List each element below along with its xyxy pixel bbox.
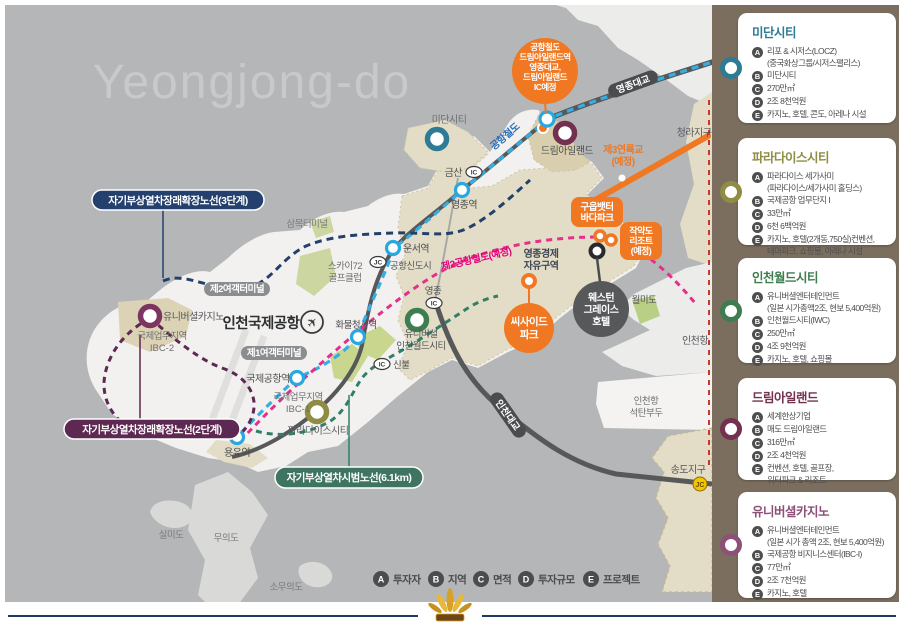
project-card: 미단시티A리포 & 시저스(LOCZ)(중국화상그룹/시저스팰리스)B미단시티C… [738,13,896,123]
airport-stn-label: 국제공항역 [246,373,290,385]
terminal2-label: 제2여객터미널 [210,283,265,295]
project-info-sidebar: 미단시티A리포 & 시저스(LOCZ)(중국화상그룹/시저스팰리스)B미단시티C… [712,5,899,602]
item-line: (일본 시가 총액 2조, 현보 5,400억원) [767,537,884,549]
cheongna-zone [680,92,712,266]
item-line: 2조 8천억원 [767,96,806,108]
item-line: (중국화상그룹/시저스팰리스) [767,58,860,70]
airport-rail-badge-pointer [545,103,546,114]
item-line: 33만㎡ [767,208,790,220]
project-card: 인천월드시티A유니버셜엔터테인먼트(일본 시가총액2조, 현보 5,400억원)… [738,258,896,363]
yeongjong-ic-name-label: 영종 [425,286,442,297]
footer-strip [0,602,904,624]
airport-station-marker [291,372,304,385]
lotus-logo [418,586,482,626]
item-letter-chip: A [752,47,763,58]
cheongna-label: 청라지구 [677,127,712,139]
item-letter-chip: A [752,292,763,303]
card-marker-dot [720,534,742,556]
item-letter-chip: A [752,526,763,537]
dream-station-marker [540,112,554,126]
item-line: 270만㎡ [767,83,795,95]
muuido-label: 무의도 [214,533,239,544]
jakyakdo-l2: (예정) [631,245,652,256]
item-letter-chip: B [752,316,763,327]
seaside-l1: 파크 [520,328,539,341]
dream-project-marker [556,124,575,143]
item-line: 2조 4천억원 [767,450,806,462]
item-line: 카지노, 호텔(2개동,750실)컨벤션, [767,234,874,246]
seaside-l0: 씨사이드 [511,315,548,328]
card-item: C33만㎡ [752,208,886,220]
bridge3-label-1: 제3연륙교 [603,143,643,156]
ibc2-label-1: 국제업무지역 [137,330,186,342]
paradise-project-marker [308,403,327,422]
sinbul-label: 신불 [393,360,410,371]
card-item: B매도 드림아일랜드 [752,424,886,436]
legend-label-a: 투자자 [393,573,421,586]
dream-label: 드림아일랜드 [541,145,594,157]
card-title: 유니버셜카지노 [752,501,886,520]
card-item: B미단시티 [752,70,886,82]
item-line: 테마파크, 쇼핑몰, 아레나 시설 [767,246,874,258]
card-item: A파라다이스 세가사미(파라다이스/세가사미 홀딩스) [752,171,886,194]
item-line: (일본 시가총액2조, 현보 5,400억원) [767,303,880,315]
card-item: E컨벤션, 호텔, 골프장,워터파크 & 리조트 [752,463,886,486]
item-line: 유니버셜엔터테인먼트 [767,525,884,537]
project-card: 드림아일랜드A세계한상기업B매도 드림아일랜드C316만㎡D2조 4천억원E컨벤… [738,378,896,480]
item-letter-chip: A [752,412,763,423]
legend-label-e: 프로젝트 [603,573,640,586]
airport-rail-badge-l0: 공항철도 [530,42,560,52]
item-line: 국제공항 비지니스센터(IBC-I) [767,549,862,561]
legend-label-d: 투자규모 [538,573,575,586]
item-letter-chip: D [752,576,763,587]
somuuido-label: 소무의도 [270,582,304,593]
legend-letter-a: A [378,575,385,585]
item-letter-chip: C [752,84,763,95]
card-marker-dot [720,57,742,79]
geumsan-label: 금산 [445,167,463,179]
sammok-label: 삼목터미널 [286,219,327,230]
legend-letter-c: C [478,575,485,585]
card-title: 미단시티 [752,22,886,41]
midan-label: 미단시티 [432,114,467,126]
card-item: C77만㎡ [752,562,886,574]
item-letter-chip: D [752,451,763,462]
unseo-label: 운서역 [403,243,429,255]
footer-rule-left [8,615,418,617]
airport-name-label: 인천국제공항 [222,314,300,332]
item-letter-chip: B [752,425,763,436]
legend: A 투자자 B 지역 C 면적 D 투자규모 E 프로젝트 [373,571,640,587]
project-card: 파라다이스시티A파라다이스 세가사미(파라다이스/세가사미 홀딩스)B국제공항 … [738,138,896,245]
item-line: 매도 드림아일랜드 [767,424,827,436]
item-line: 리포 & 시저스(LOCZ) [767,46,860,58]
card-title: 인천월드시티 [752,267,886,286]
unseo-station-marker [387,242,400,255]
island-title: Yeongjong-do [93,56,412,109]
yeongjong-stn-label: 영종역 [451,199,477,211]
item-line: 4조 9천억원 [767,341,806,353]
card-marker-dot [720,300,742,322]
sky72-label-1: 스카이72 [328,261,363,272]
item-line: 세계한상기업 [767,411,810,423]
item-line: 국제공항 업무단지 I [767,195,830,207]
legend-letter-b: B [433,575,440,585]
maglev3-badge-label: 자기부상열차장래확장노선(3단계) [108,194,248,207]
item-letter-chip: E [752,110,763,121]
ucasino-project-marker [141,307,160,326]
card-item: D4조 9천억원 [752,341,886,353]
airport-rail-badge-l1: 드림아일랜드역 [519,52,570,62]
item-letter-chip: E [752,589,763,600]
econ-label-2: 자유구역 [524,259,559,272]
midan-project-marker [428,130,447,149]
geumsan-ic-label: IC [471,170,478,177]
coal-label-1: 인천항 [634,396,659,407]
ibc1-label-1: 국제업무지역 [273,391,322,403]
wolmido-label: 월미도 [632,294,657,306]
legend-label-c: 면적 [493,573,511,586]
item-line: 316만㎡ [767,437,795,449]
yeongjong-bridge-label: 영종대교 [615,73,652,96]
card-item: D6천 6백억원 [752,221,886,233]
card-item: C250만㎡ [752,328,886,340]
airport-rail-badge-l2: 영종대교, [529,62,560,72]
somuuido-island [298,562,332,587]
card-item: B국제공항 비지니스센터(IBC-I) [752,549,886,561]
songdo-zone [652,428,712,592]
jakyakdo-l0: 작약도 [629,225,654,236]
cargo-label: 화물청사역 [335,320,376,331]
item-letter-chip: C [752,329,763,340]
item-letter-chip: E [752,464,763,475]
card-item: D2조 8천억원 [752,96,886,108]
sinbul-ic-label: IC [379,362,386,369]
item-line: 카지노, 호텔 [767,588,807,600]
cargo-station-marker [352,331,365,344]
ucasino-label: 유니버셜카지노 [163,311,224,323]
item-line: 2조 7천억원 [767,575,806,587]
item-line: 250만㎡ [767,328,795,340]
yongyu-label: 용유역 [224,447,250,459]
item-letter-chip: E [752,355,763,366]
project-card: 유니버셜카지노A유니버셜엔터테인먼트(일본 시가 총액 2조, 현보 5,400… [738,492,896,598]
yeongjong-ic-label: IC [431,301,438,308]
ibc1-label-2: IBC-1 [286,404,310,415]
maglev2-badge-label: 자기부상열차장래확장노선(2단계) [82,423,222,436]
jakyakdo-l1: 리조트 [629,235,654,246]
coal-label-2: 석탄부두 [630,408,664,419]
western-grace-marker [591,245,604,258]
item-line: 유니버셜엔터테인먼트 [767,291,880,303]
airport-rail-badge-l4: IC예정 [534,82,556,92]
yeongjong-station-marker [456,184,469,197]
silmido-island [150,500,192,528]
item-letter-chip: B [752,196,763,207]
iwc-label-1: 유니버셜 [405,329,438,340]
yeongjongdo-development-map: { "title": "Yeongjong-do", "map": { "bad… [0,0,904,624]
iwc-project-marker [408,311,427,330]
item-letter-chip: D [752,222,763,233]
sky72-label-2: 골프클럽 [329,273,362,284]
seaside-marker [523,275,535,287]
item-letter-chip: C [752,438,763,449]
item-line: 미단시티 [767,70,796,82]
card-item: B인천월드시티(IWC) [752,315,886,327]
item-letter-chip: A [752,172,763,183]
songdo-label: 송도지구 [671,464,706,476]
newtown-jc-label: JC [374,260,383,267]
card-item: A유니버셜엔터테인먼트(일본 시가총액2조, 현보 5,400억원) [752,291,886,314]
ibc2-label-2: IBC-2 [150,343,174,354]
incheon-port-label: 인천항 [682,335,708,347]
guueup-l1: 바다파크 [581,212,615,224]
item-line: 파라다이스 세가사미 [767,171,862,183]
western-l2: 호텔 [592,315,610,328]
jakyakdo-marker-1 [595,231,605,241]
item-line: 워터파크 & 리조트 [767,475,834,487]
bridge3-label-2: (예정) [611,155,634,168]
maglev-test-badge-label: 자기부상열차시범노선(6.1km) [287,471,412,484]
card-item: E카지노, 호텔 [752,588,886,600]
card-item: D2조 4천억원 [752,450,886,462]
airport-newtown-label: 공항신도시 [390,261,431,272]
card-item: C316만㎡ [752,437,886,449]
item-line: 6천 6백억원 [767,221,806,233]
airport-rail-badge-l3: 드림아일랜드 [523,72,568,82]
western-l0: 웨스턴 [588,291,614,304]
item-line: 인천월드시티(IWC) [767,315,830,327]
card-item: A유니버셜엔터테인먼트(일본 시가 총액 2조, 현보 5,400억원) [752,525,886,548]
seaside-badge [504,303,554,353]
card-item: D2조 7천억원 [752,575,886,587]
legend-letter-e: E [588,575,594,585]
paradise-label: 파라다이스시티 [288,425,349,437]
silmido-label: 실미도 [159,530,184,541]
legend-label-b: 지역 [448,573,466,586]
item-letter-chip: E [752,235,763,246]
songdo-jc-label: JC [696,482,705,489]
card-title: 파라다이스시티 [752,147,886,166]
item-line: 컨벤션, 호텔, 골프장, [767,463,834,475]
card-item: C270만㎡ [752,83,886,95]
iwc-label-2: 인천월드시티 [396,340,445,352]
card-marker-dot [720,181,742,203]
item-letter-chip: B [752,550,763,561]
incheon-bridge-pill: 인천대교 [487,390,528,441]
item-letter-chip: D [752,342,763,353]
map-canvas: Yeongjong-do [5,5,712,602]
item-line: 카지노, 호텔, 쇼핑몰 [767,354,832,366]
card-title: 드림아일랜드 [752,387,886,406]
jakyakdo-marker-2 [606,235,616,245]
legend-letter-d: D [523,575,530,585]
econ-label-1: 영종경제 [524,247,559,260]
western-l1: 그레이스 [584,303,619,316]
item-letter-chip: C [752,563,763,574]
terminal1-label: 제1여객터미널 [247,347,302,359]
item-line: 카지노, 호텔, 콘도, 아레나 시설 [767,109,866,121]
yeongjong-bridge-pill: 영종대교 [606,69,660,100]
item-letter-chip: B [752,71,763,82]
item-letter-chip: C [752,209,763,220]
card-item: E카지노, 호텔, 쇼핑몰 [752,354,886,366]
card-item: B국제공항 업무단지 I [752,195,886,207]
guueup-l0: 구읍뱃터 [581,201,614,213]
item-letter-chip: D [752,97,763,108]
item-line: 77만㎡ [767,562,790,574]
card-item: A리포 & 시저스(LOCZ)(중국화상그룹/시저스팰리스) [752,46,886,69]
card-item: A세계한상기업 [752,411,886,423]
card-item: E카지노, 호텔, 콘도, 아레나 시설 [752,109,886,121]
footer-rule-right [482,615,896,617]
card-marker-dot [720,418,742,440]
third-link-dot [619,175,626,182]
item-line: (파라다이스/세가사미 홀딩스) [767,183,862,195]
